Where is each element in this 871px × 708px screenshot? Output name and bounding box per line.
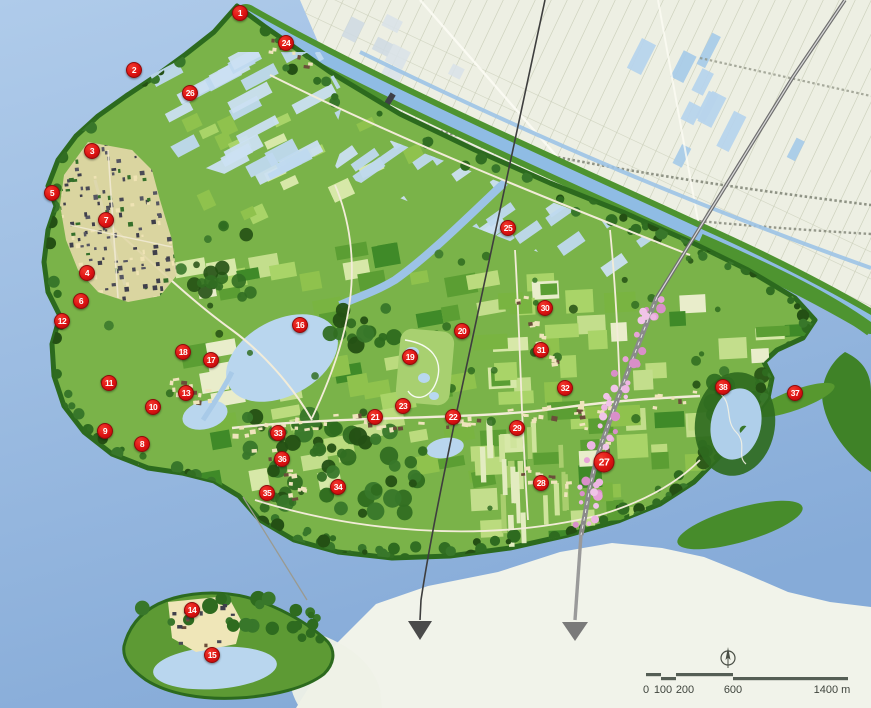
field-patch bbox=[494, 362, 517, 381]
village-house bbox=[693, 390, 698, 393]
village-house bbox=[477, 419, 482, 423]
field-patch bbox=[160, 286, 163, 291]
village-house bbox=[323, 422, 327, 426]
tree-blob bbox=[794, 303, 800, 309]
village-house bbox=[193, 391, 197, 395]
field-patch bbox=[116, 159, 121, 163]
village-house bbox=[538, 415, 543, 420]
tree-blob bbox=[367, 502, 385, 520]
field-patch bbox=[97, 202, 100, 206]
village-house bbox=[308, 62, 313, 66]
village-house bbox=[292, 51, 295, 55]
village-house bbox=[471, 423, 476, 426]
tree-blob bbox=[313, 77, 321, 85]
field-patch bbox=[371, 242, 400, 268]
tree-blob bbox=[321, 76, 331, 86]
village-house bbox=[184, 610, 187, 614]
tree-blob bbox=[270, 492, 280, 502]
village-house bbox=[217, 640, 221, 643]
field-patch bbox=[157, 221, 160, 226]
field-patch bbox=[69, 243, 73, 248]
tree-blob bbox=[532, 278, 537, 283]
field-patch bbox=[147, 198, 151, 202]
tree-blob bbox=[290, 604, 303, 617]
village-house bbox=[517, 301, 521, 305]
blossom-tree bbox=[593, 503, 599, 509]
tree-blob bbox=[386, 329, 402, 345]
village-house bbox=[198, 393, 202, 397]
field-patch bbox=[132, 267, 136, 271]
field-patch bbox=[98, 261, 103, 265]
village-house bbox=[268, 50, 273, 54]
field-patch bbox=[64, 183, 68, 186]
tree-blob bbox=[232, 274, 246, 288]
field-patch bbox=[102, 257, 104, 260]
field-patch bbox=[66, 189, 71, 192]
village-house bbox=[564, 492, 568, 497]
scale-label-200: 200 bbox=[676, 684, 694, 696]
tree-blob bbox=[243, 441, 258, 456]
field-patch bbox=[498, 390, 534, 405]
field-patch bbox=[147, 202, 150, 205]
scale-label-0: 0 bbox=[643, 684, 649, 696]
village-house bbox=[271, 424, 276, 429]
village-house bbox=[193, 400, 200, 404]
tree-blob bbox=[285, 435, 301, 451]
field-patch bbox=[134, 156, 136, 158]
scale-label-600: 600 bbox=[724, 684, 742, 696]
village-house bbox=[467, 417, 471, 422]
field-patch bbox=[98, 195, 101, 198]
field-patch bbox=[89, 259, 93, 262]
tree-blob bbox=[418, 446, 428, 456]
village-house bbox=[539, 473, 544, 478]
tree-blob bbox=[247, 350, 253, 356]
field-patch bbox=[112, 283, 117, 287]
village-house bbox=[532, 419, 537, 423]
tree-blob bbox=[175, 263, 186, 274]
field-patch bbox=[94, 176, 97, 179]
tree-blob bbox=[692, 381, 700, 389]
tree-blob bbox=[244, 286, 256, 298]
field-patch bbox=[126, 282, 129, 287]
blossom-tree bbox=[587, 441, 596, 450]
tree-blob bbox=[197, 278, 207, 288]
field-patch bbox=[163, 278, 168, 283]
village-house bbox=[231, 614, 235, 616]
tree-blob bbox=[98, 434, 108, 444]
field-patch bbox=[119, 275, 124, 280]
blossom-tree bbox=[638, 347, 646, 355]
tree-blob bbox=[434, 250, 443, 259]
field-patch bbox=[84, 232, 87, 237]
tree-blob bbox=[715, 307, 721, 313]
tree-blob bbox=[358, 509, 367, 518]
tree-blob bbox=[622, 277, 628, 283]
field-patch bbox=[112, 172, 115, 175]
field-patch bbox=[604, 292, 636, 314]
blossom-tree bbox=[584, 457, 590, 463]
field-patch bbox=[75, 243, 80, 248]
field-patch bbox=[94, 275, 97, 280]
field-patch bbox=[138, 227, 142, 230]
blossom-tree bbox=[606, 400, 612, 406]
blossom-tree bbox=[599, 412, 607, 420]
tree-blob bbox=[337, 449, 347, 459]
field-patch bbox=[633, 369, 654, 390]
field-patch bbox=[105, 288, 108, 291]
tree-blob bbox=[135, 601, 150, 616]
tree-blob bbox=[262, 592, 276, 606]
village-house bbox=[655, 394, 660, 398]
village-house bbox=[542, 407, 548, 412]
village-house bbox=[295, 417, 299, 422]
village-house bbox=[232, 434, 238, 439]
blossom-tree bbox=[621, 385, 629, 393]
village-house bbox=[537, 480, 542, 484]
blossom-tree bbox=[624, 395, 628, 399]
field-patch bbox=[75, 222, 80, 225]
tree-blob bbox=[377, 111, 383, 117]
field-patch bbox=[143, 284, 148, 289]
field-patch bbox=[153, 191, 157, 195]
field-patch bbox=[77, 173, 81, 176]
field-patch bbox=[559, 355, 577, 378]
field-patch bbox=[111, 168, 116, 171]
field-patch bbox=[122, 296, 126, 300]
blossom-tree bbox=[606, 435, 613, 442]
field-patch bbox=[533, 452, 559, 465]
field-patch bbox=[499, 435, 506, 462]
tree-blob bbox=[699, 351, 704, 356]
village-house bbox=[528, 322, 533, 326]
tree-blob bbox=[379, 333, 388, 342]
field-patch bbox=[152, 250, 157, 255]
field-patch bbox=[71, 233, 75, 236]
field-patch bbox=[86, 186, 90, 190]
tree-blob bbox=[202, 598, 218, 614]
tree-blob bbox=[533, 300, 539, 306]
tree-blob bbox=[68, 402, 75, 409]
tree-blob bbox=[242, 412, 253, 423]
blossom-tree bbox=[580, 491, 585, 496]
tree-blob bbox=[356, 325, 374, 343]
field-patch bbox=[119, 213, 122, 218]
field-patch bbox=[152, 285, 157, 290]
tree-blob bbox=[388, 543, 400, 555]
field-patch bbox=[116, 208, 121, 212]
village-house bbox=[333, 414, 339, 417]
village-house bbox=[181, 381, 187, 385]
tree-blob bbox=[446, 546, 456, 556]
tree-blob bbox=[384, 552, 390, 558]
tree-blob bbox=[724, 263, 731, 270]
village-house bbox=[541, 336, 546, 340]
tree-blob bbox=[686, 256, 692, 262]
village-house bbox=[288, 493, 293, 498]
field-patch bbox=[718, 337, 747, 359]
village-house bbox=[393, 427, 397, 431]
village-house bbox=[574, 412, 578, 415]
field-patch bbox=[101, 147, 104, 151]
blossom-tree bbox=[638, 316, 646, 324]
village-house bbox=[446, 425, 449, 429]
village-house bbox=[398, 426, 403, 430]
field-patch bbox=[248, 468, 270, 491]
tree-blob bbox=[487, 417, 496, 426]
village-house bbox=[186, 617, 189, 619]
village-house bbox=[451, 415, 455, 419]
field-patch bbox=[679, 294, 706, 313]
tree-blob bbox=[375, 546, 383, 554]
tree-blob bbox=[207, 303, 213, 309]
field-patch bbox=[140, 257, 144, 262]
village-house bbox=[671, 397, 674, 400]
village-house bbox=[264, 423, 269, 428]
field-patch bbox=[510, 426, 517, 448]
tree-blob bbox=[569, 305, 578, 314]
village-house bbox=[195, 608, 200, 610]
field-patch bbox=[119, 197, 124, 201]
village-house bbox=[458, 419, 464, 423]
tree-blob bbox=[405, 456, 417, 468]
field-patch bbox=[616, 434, 648, 459]
tree-blob bbox=[409, 479, 417, 487]
field-patch bbox=[107, 236, 111, 239]
tree-blob bbox=[287, 621, 300, 634]
village-house bbox=[204, 644, 207, 648]
field-patch bbox=[153, 245, 158, 249]
scale-label-end: 1400 m bbox=[814, 684, 851, 696]
tree-blob bbox=[104, 321, 114, 331]
field-patch bbox=[210, 429, 232, 450]
village-house bbox=[683, 401, 687, 404]
tree-blob bbox=[360, 316, 368, 324]
field-patch bbox=[473, 334, 508, 351]
field-patch bbox=[558, 445, 563, 468]
field-patch bbox=[92, 222, 95, 226]
village-house bbox=[250, 429, 256, 434]
field-patch bbox=[156, 262, 160, 266]
tree-blob bbox=[698, 252, 707, 261]
field-patch bbox=[63, 203, 66, 206]
tree-blob bbox=[327, 443, 336, 452]
tree-blob bbox=[239, 618, 253, 632]
tree-blob bbox=[87, 425, 93, 431]
field-patch bbox=[127, 175, 131, 179]
blossom-tree bbox=[590, 488, 598, 496]
field-patch bbox=[513, 472, 520, 504]
tree-blob bbox=[266, 622, 279, 635]
village-house bbox=[289, 482, 293, 486]
village-house bbox=[179, 642, 183, 645]
tree-blob bbox=[100, 377, 109, 386]
tree-blob bbox=[383, 489, 402, 508]
field-patch bbox=[167, 237, 172, 242]
field-patch bbox=[441, 304, 461, 322]
tree-blob bbox=[331, 93, 338, 100]
field-patch bbox=[588, 330, 608, 350]
tree-blob bbox=[73, 408, 84, 419]
blossom-tree bbox=[623, 356, 629, 362]
tree-blob bbox=[370, 433, 381, 444]
village-house bbox=[551, 416, 558, 422]
village-house bbox=[268, 457, 272, 461]
field-patch bbox=[669, 311, 686, 326]
blossom-tree bbox=[593, 482, 600, 489]
tree-blob bbox=[204, 235, 212, 243]
field-patch bbox=[75, 159, 78, 164]
blossom-tree bbox=[611, 385, 619, 393]
village-house bbox=[299, 421, 302, 424]
tree-blob bbox=[193, 261, 200, 268]
field-patch bbox=[118, 266, 123, 271]
field-patch bbox=[470, 488, 498, 511]
village-house bbox=[172, 612, 176, 615]
tree-blob bbox=[691, 356, 701, 366]
tree-blob bbox=[389, 460, 401, 472]
tree-blob bbox=[423, 137, 433, 147]
field-patch bbox=[151, 220, 156, 225]
blossom-tree bbox=[581, 477, 590, 486]
tree-blob bbox=[385, 475, 397, 487]
village-house bbox=[176, 393, 182, 398]
village-house bbox=[170, 381, 174, 386]
field-patch bbox=[156, 201, 160, 205]
field-patch bbox=[133, 175, 137, 179]
resort-park bbox=[395, 328, 455, 406]
tree-blob bbox=[334, 502, 348, 516]
tree-blob bbox=[506, 539, 512, 545]
village-house bbox=[566, 481, 572, 485]
field-patch bbox=[78, 238, 81, 241]
tree-blob bbox=[64, 390, 72, 398]
field-patch bbox=[544, 381, 562, 402]
blossom-tree bbox=[656, 304, 666, 314]
tree-blob bbox=[787, 297, 794, 304]
field-patch bbox=[141, 235, 143, 238]
field-patch bbox=[141, 267, 146, 270]
field-patch bbox=[94, 247, 97, 250]
field-patch bbox=[105, 229, 107, 231]
village-house bbox=[258, 427, 262, 430]
field-patch bbox=[67, 179, 70, 183]
field-patch bbox=[120, 207, 124, 212]
village-house bbox=[581, 411, 585, 415]
blossom-tree bbox=[632, 359, 640, 367]
village-house bbox=[534, 321, 540, 326]
village-house bbox=[584, 427, 588, 430]
tree-blob bbox=[239, 228, 253, 242]
village-house bbox=[516, 420, 522, 424]
tree-blob bbox=[397, 504, 413, 520]
tree-blob bbox=[308, 612, 315, 619]
village-house bbox=[297, 55, 301, 60]
village-house bbox=[447, 419, 451, 424]
tree-blob bbox=[303, 531, 309, 537]
plan-map: 0 100 200 600 1400 m 1234567891011121314… bbox=[0, 0, 871, 708]
blossom-tree bbox=[577, 484, 582, 489]
village-house bbox=[252, 449, 257, 453]
blossom-tree bbox=[611, 370, 618, 377]
village-house bbox=[220, 606, 225, 610]
village-house bbox=[551, 481, 557, 484]
blossom-tree bbox=[613, 429, 618, 434]
field-patch bbox=[756, 325, 790, 337]
field-patch bbox=[654, 411, 684, 428]
tree-blob bbox=[282, 429, 288, 435]
village-house bbox=[208, 399, 212, 404]
village-house bbox=[521, 473, 525, 476]
field-patch bbox=[136, 271, 139, 276]
tree-blob bbox=[306, 628, 316, 638]
field-patch bbox=[104, 247, 107, 251]
field-patch bbox=[130, 258, 133, 261]
blossom-tree bbox=[591, 515, 599, 523]
tree-blob bbox=[227, 619, 240, 632]
field-patch bbox=[80, 194, 83, 197]
field-patch bbox=[165, 268, 170, 271]
village-house bbox=[303, 489, 308, 493]
tree-blob bbox=[349, 427, 367, 445]
tree-blob bbox=[475, 153, 487, 165]
field-patch bbox=[651, 452, 669, 470]
village-house bbox=[528, 481, 534, 485]
tree-blob bbox=[317, 535, 330, 548]
tree-blob bbox=[410, 541, 421, 552]
tree-blob bbox=[307, 619, 319, 631]
field-patch bbox=[610, 322, 627, 342]
village-house bbox=[200, 611, 203, 615]
village-house bbox=[579, 406, 584, 410]
tree-blob bbox=[487, 505, 492, 510]
field-patch bbox=[72, 179, 77, 182]
tree-blob bbox=[312, 443, 326, 457]
tree-blob bbox=[530, 348, 539, 357]
village-house bbox=[239, 426, 244, 430]
village-house bbox=[551, 358, 556, 362]
village-house bbox=[368, 423, 373, 428]
tree-blob bbox=[278, 434, 286, 442]
field-patch bbox=[124, 287, 129, 292]
village-house bbox=[547, 405, 552, 409]
blossom-tree bbox=[603, 393, 610, 400]
tree-blob bbox=[631, 301, 639, 309]
field-patch bbox=[166, 256, 170, 259]
field-patch bbox=[156, 278, 160, 283]
field-patch bbox=[130, 203, 134, 207]
village-house bbox=[313, 427, 319, 430]
tree-blob bbox=[491, 164, 500, 173]
tree-blob bbox=[631, 414, 640, 423]
field-patch bbox=[86, 253, 90, 256]
tree-blob bbox=[442, 322, 451, 331]
village-house bbox=[271, 39, 275, 43]
field-patch bbox=[79, 263, 84, 267]
blossom-tree bbox=[587, 521, 592, 526]
tree-blob bbox=[371, 484, 383, 496]
village-house bbox=[364, 419, 368, 424]
village-house bbox=[468, 422, 472, 427]
tree-blob bbox=[315, 635, 324, 644]
field-patch bbox=[71, 236, 74, 240]
map-canvas: 0 100 200 600 1400 m bbox=[0, 0, 871, 708]
village-house bbox=[376, 425, 381, 430]
field-patch bbox=[299, 271, 322, 292]
field-patch bbox=[545, 323, 579, 339]
village-house bbox=[177, 625, 182, 629]
field-patch bbox=[136, 233, 139, 238]
